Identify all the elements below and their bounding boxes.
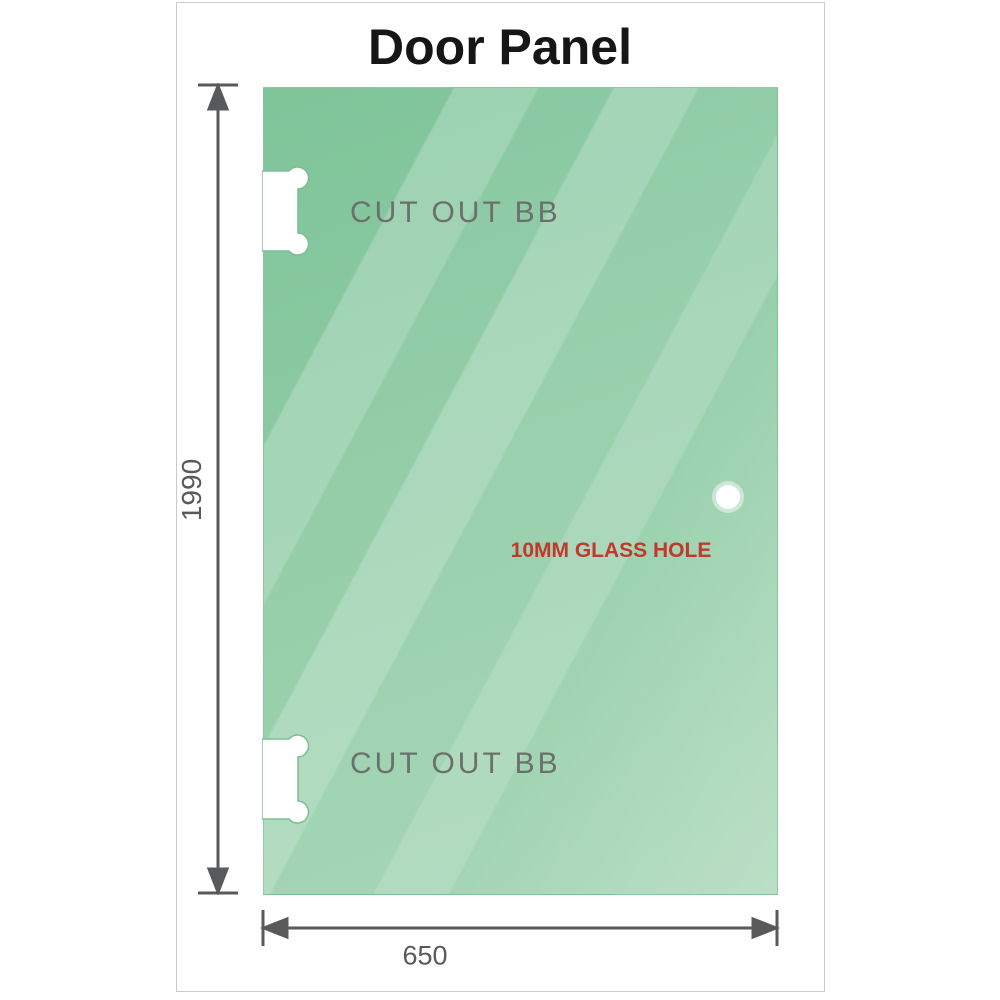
width-dim-arrowhead-left: [264, 919, 287, 937]
cutout-shape-bottom: [262, 733, 314, 825]
cutout-label-top: CUT OUT BB: [350, 196, 561, 230]
height-dim-arrowhead-top: [209, 86, 227, 109]
door-panel-diagram: Door Panel CUT OUT BB CUT OUT BB 10MM GL…: [0, 0, 1000, 1000]
height-dimension-label: 1990: [176, 459, 208, 521]
glass-hole: [716, 485, 740, 509]
width-dimension-arrow: [260, 906, 780, 950]
page-title: Door Panel: [176, 18, 824, 76]
width-dimension-label: 650: [402, 941, 447, 972]
height-dim-arrowhead-bottom: [209, 869, 227, 892]
glass-hole-label: 10MM GLASS HOLE: [511, 539, 712, 563]
cutout-label-bottom: CUT OUT BB: [350, 747, 561, 781]
width-dim-arrowhead-right: [753, 919, 776, 937]
cutout-shape-top: [262, 165, 314, 257]
cutout-path: [262, 167, 308, 255]
cutout-path: [262, 735, 308, 823]
